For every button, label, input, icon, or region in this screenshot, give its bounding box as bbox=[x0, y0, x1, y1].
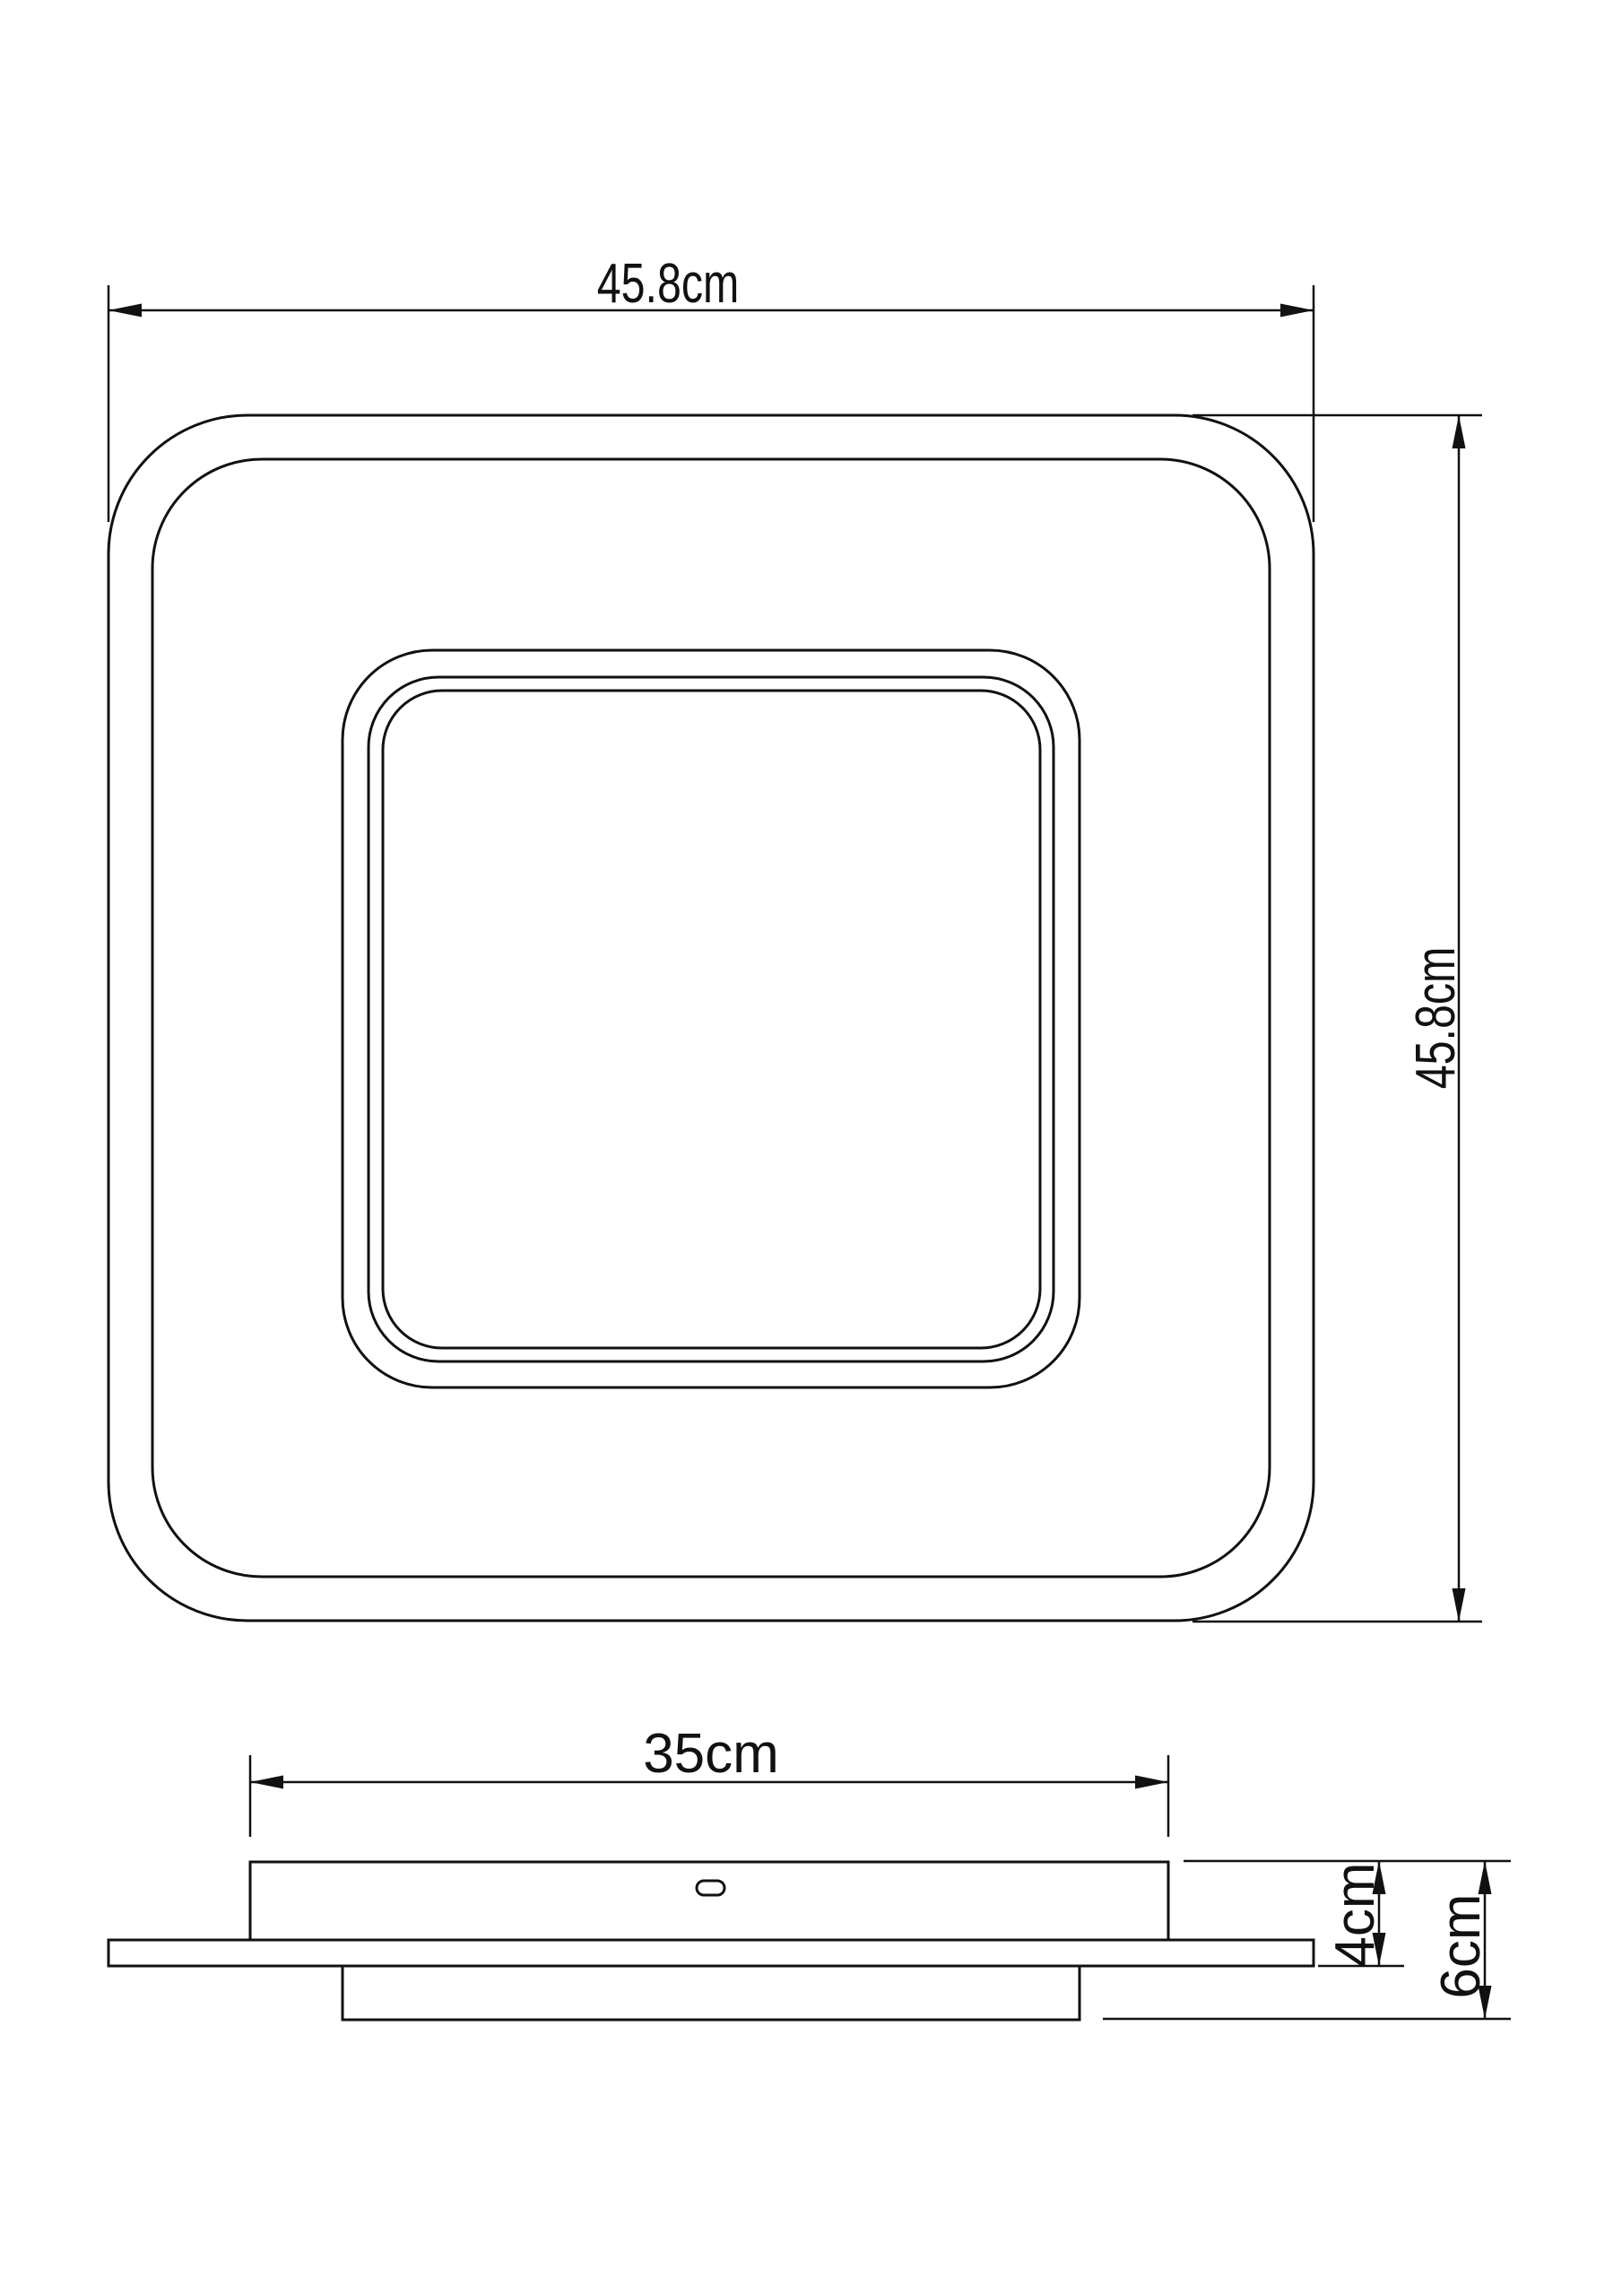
mount-width-dimension: 35cm bbox=[250, 1723, 1168, 1837]
arrowhead-top bbox=[1479, 1861, 1492, 1894]
arrowhead-top bbox=[1453, 415, 1466, 448]
center-panel-outer-contour bbox=[343, 650, 1080, 1387]
outer-frame-inner-contour bbox=[152, 459, 1270, 1577]
mount-box bbox=[250, 1862, 1168, 1940]
arrowhead-right bbox=[1280, 304, 1314, 317]
right-height-label: 45.8cm bbox=[1404, 947, 1466, 1090]
center-body bbox=[343, 1966, 1080, 2020]
arrowhead-left bbox=[250, 1776, 283, 1789]
arrowhead-right bbox=[1135, 1776, 1168, 1789]
mount-width-label: 35cm bbox=[643, 1723, 779, 1785]
drawing-canvas: 45.8cm 45.8cm bbox=[0, 0, 1622, 2296]
outer-frame-contour bbox=[108, 415, 1314, 1621]
arrowhead-bottom bbox=[1453, 1588, 1466, 1622]
top-view bbox=[108, 415, 1314, 1621]
arrowhead-left bbox=[108, 304, 142, 317]
mounting-slot bbox=[697, 1881, 724, 1895]
total-depth-label: 6cm bbox=[1430, 1893, 1492, 1998]
mount-depth-label: 4cm bbox=[1324, 1862, 1386, 1967]
top-width-dimension: 45.8cm bbox=[108, 252, 1314, 522]
side-view bbox=[108, 1862, 1314, 2020]
fixture-dimension-drawing: 45.8cm 45.8cm bbox=[0, 0, 1622, 2296]
base-plate bbox=[108, 1940, 1314, 1966]
center-panel-mid-contour bbox=[369, 677, 1054, 1361]
center-panel-inner-contour bbox=[383, 691, 1040, 1348]
right-height-dimension: 45.8cm bbox=[1193, 415, 1482, 1622]
top-width-label: 45.8cm bbox=[597, 252, 740, 314]
